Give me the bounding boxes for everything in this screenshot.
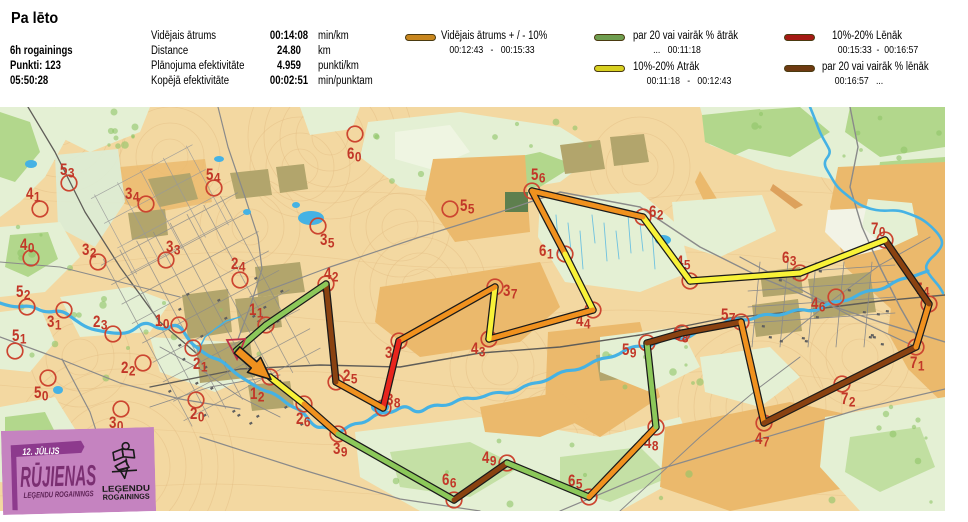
svg-text:3: 3 xyxy=(174,243,181,258)
svg-text:2: 2 xyxy=(296,410,303,428)
svg-text:1: 1 xyxy=(250,385,257,403)
svg-text:4: 4 xyxy=(482,449,490,467)
svg-text:3: 3 xyxy=(125,185,132,203)
svg-text:7: 7 xyxy=(763,435,770,450)
svg-text:ROGAININGS: ROGAININGS xyxy=(103,492,150,502)
svg-text:8: 8 xyxy=(394,396,401,411)
svg-text:2: 2 xyxy=(93,313,100,331)
svg-text:4: 4 xyxy=(133,190,140,205)
svg-text:0: 0 xyxy=(42,389,49,404)
svg-text:9: 9 xyxy=(341,445,348,460)
svg-text:5: 5 xyxy=(16,283,23,301)
svg-text:0: 0 xyxy=(163,317,170,332)
svg-text:3: 3 xyxy=(68,166,75,181)
svg-text:4: 4 xyxy=(26,185,34,203)
svg-text:6: 6 xyxy=(649,203,656,221)
svg-text:5: 5 xyxy=(12,327,19,345)
svg-text:6: 6 xyxy=(442,471,449,489)
svg-text:4: 4 xyxy=(239,260,246,275)
svg-text:7: 7 xyxy=(511,287,518,302)
svg-text:3: 3 xyxy=(47,313,54,331)
svg-text:5: 5 xyxy=(60,161,67,179)
svg-text:1: 1 xyxy=(918,359,925,374)
svg-text:5: 5 xyxy=(206,166,213,184)
svg-text:1: 1 xyxy=(201,360,208,375)
svg-text:2: 2 xyxy=(332,270,339,285)
svg-text:4: 4 xyxy=(214,171,221,186)
svg-text:1: 1 xyxy=(257,306,264,321)
svg-text:5: 5 xyxy=(460,197,467,215)
svg-text:3: 3 xyxy=(479,345,486,360)
svg-text:2: 2 xyxy=(121,359,128,377)
svg-text:6: 6 xyxy=(782,249,789,267)
svg-text:2: 2 xyxy=(129,364,136,379)
svg-text:2: 2 xyxy=(849,395,856,410)
svg-text:3: 3 xyxy=(333,440,340,458)
svg-text:6: 6 xyxy=(539,242,546,260)
svg-text:7: 7 xyxy=(910,354,917,372)
svg-text:4: 4 xyxy=(755,430,763,448)
svg-text:2: 2 xyxy=(24,288,31,303)
svg-text:LEĢENDU ROGAININGS: LEĢENDU ROGAININGS xyxy=(24,489,95,500)
svg-text:6: 6 xyxy=(819,300,826,315)
svg-text:7: 7 xyxy=(841,390,848,408)
svg-text:0: 0 xyxy=(355,150,362,165)
svg-text:1: 1 xyxy=(155,312,162,330)
svg-text:2: 2 xyxy=(231,255,238,273)
svg-text:6: 6 xyxy=(450,476,457,491)
svg-text:2: 2 xyxy=(258,390,265,405)
svg-text:1: 1 xyxy=(55,318,62,333)
svg-text:6: 6 xyxy=(304,415,311,430)
svg-text:5: 5 xyxy=(34,384,41,402)
svg-text:1: 1 xyxy=(34,190,41,205)
svg-text:3: 3 xyxy=(320,231,327,249)
svg-text:0: 0 xyxy=(198,410,205,425)
svg-text:2: 2 xyxy=(90,246,97,261)
svg-text:4: 4 xyxy=(20,236,28,254)
svg-text:2: 2 xyxy=(190,405,197,423)
svg-text:4: 4 xyxy=(324,265,332,283)
svg-text:1: 1 xyxy=(249,301,256,319)
svg-text:2: 2 xyxy=(657,208,664,223)
svg-text:6: 6 xyxy=(347,145,354,163)
svg-text:12. JŪLIJS: 12. JŪLIJS xyxy=(22,446,60,458)
svg-text:7: 7 xyxy=(871,220,878,238)
svg-text:3: 3 xyxy=(166,238,173,256)
svg-text:1: 1 xyxy=(547,247,554,262)
svg-text:3: 3 xyxy=(790,254,797,269)
svg-text:6: 6 xyxy=(539,171,546,186)
svg-text:4: 4 xyxy=(811,295,819,313)
svg-text:9: 9 xyxy=(630,346,637,361)
svg-text:5: 5 xyxy=(468,202,475,217)
svg-text:2: 2 xyxy=(193,355,200,373)
svg-text:3: 3 xyxy=(101,318,108,333)
svg-text:1: 1 xyxy=(20,332,27,347)
svg-text:8: 8 xyxy=(652,439,659,454)
svg-text:5: 5 xyxy=(622,341,629,359)
svg-text:5: 5 xyxy=(328,236,335,251)
svg-text:5: 5 xyxy=(351,372,358,387)
svg-text:3: 3 xyxy=(503,282,510,300)
svg-text:3: 3 xyxy=(82,241,89,259)
svg-text:0: 0 xyxy=(28,241,35,256)
svg-text:5: 5 xyxy=(531,166,538,184)
svg-text:4: 4 xyxy=(471,340,479,358)
svg-text:4: 4 xyxy=(584,317,591,332)
